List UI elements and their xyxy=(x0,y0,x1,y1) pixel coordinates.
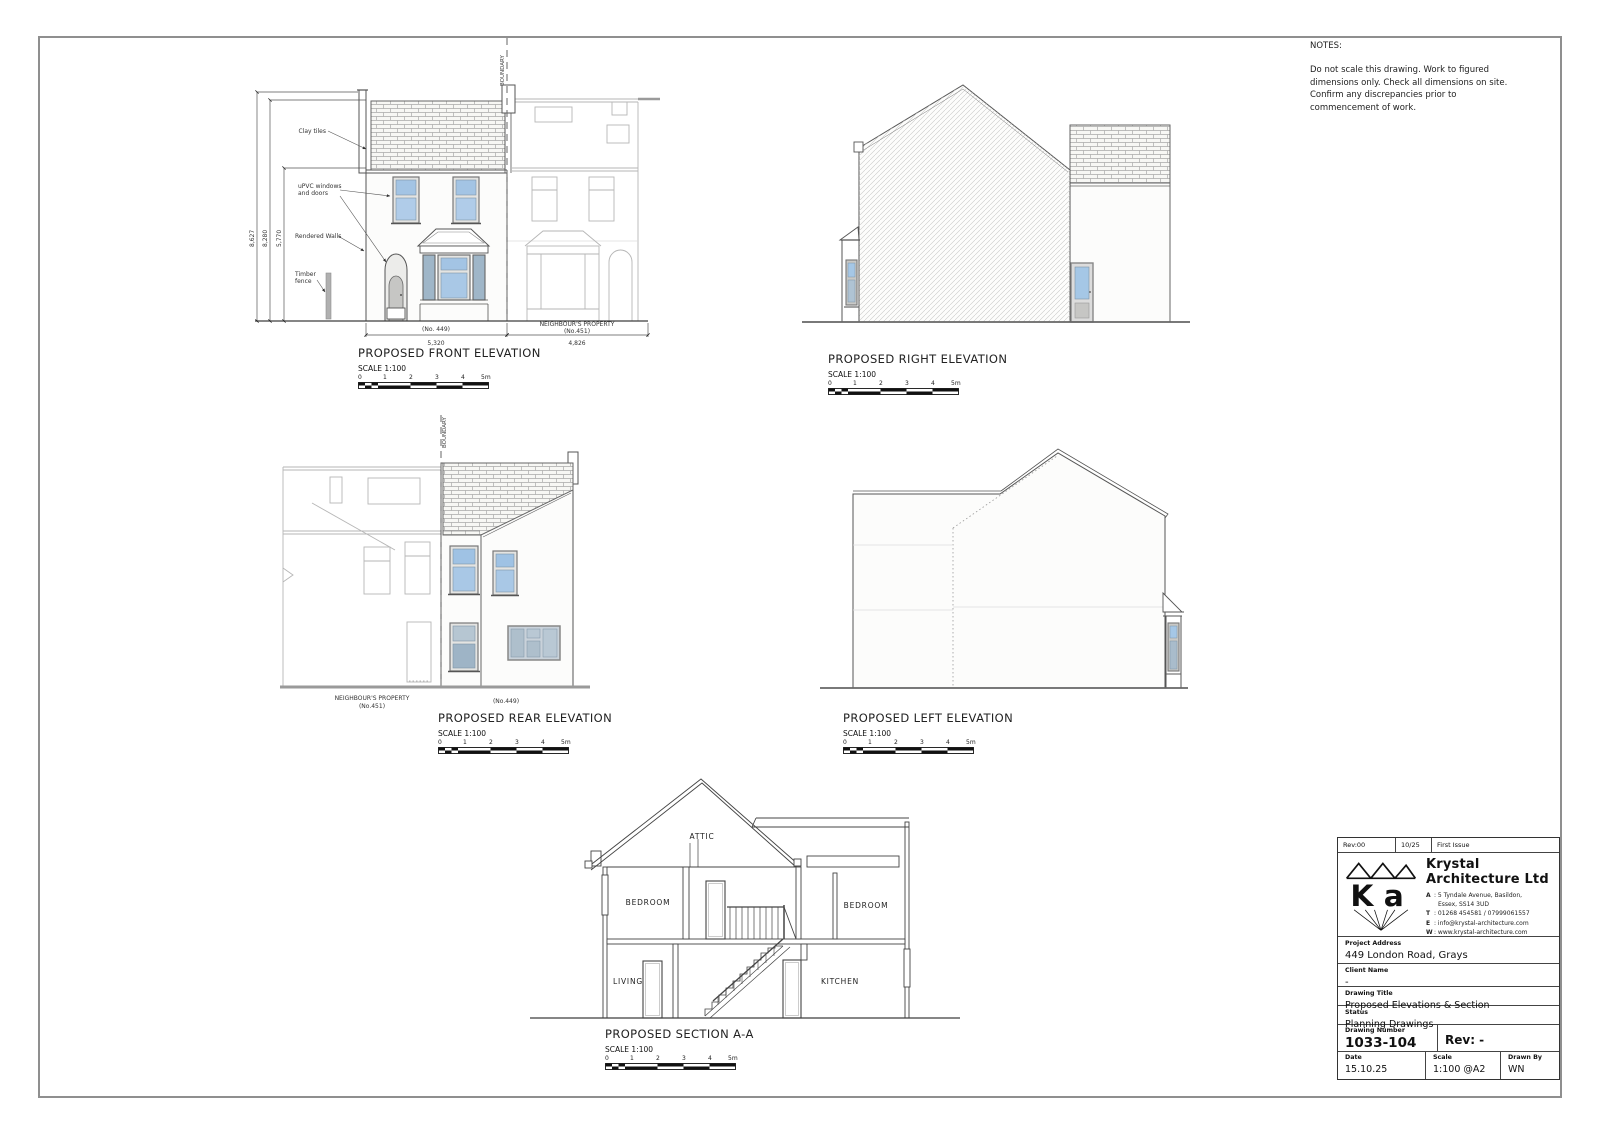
scalebar-tick: 3 xyxy=(905,380,909,387)
scalebar-tick: 3 xyxy=(682,1055,686,1062)
rear-scalebar-ticks: 012345m xyxy=(438,739,574,746)
revision-row: Rev:00 10/25 First Issue xyxy=(1338,838,1559,853)
front-timber-fence-post xyxy=(326,273,331,319)
rear-neighbour-label-1: NEIGHBOUR'S PROPERTY xyxy=(335,695,410,702)
scalebar-tick: 5m xyxy=(728,1055,738,1062)
rendered-walls-label: Rendered Walls xyxy=(295,233,341,240)
front-scalebar-ticks: 012345m xyxy=(358,374,494,381)
scalebar-tick: 0 xyxy=(843,739,847,746)
timber-fence-label-1: Timber xyxy=(294,271,316,278)
timber-fence-label-2: fence xyxy=(295,278,312,285)
left-elevation-drawing: PROPOSED LEFT ELEVATION SCALE 1:100 0123… xyxy=(820,430,1190,760)
clay-tiles-label: Clay tiles xyxy=(299,128,327,135)
scalebar-tick: 3 xyxy=(515,739,519,746)
right-door xyxy=(1071,263,1093,322)
scalebar-tick: 3 xyxy=(435,374,439,381)
client-name-field: Client Name - xyxy=(1338,964,1559,987)
rear-scalebar xyxy=(438,747,570,755)
left-flank-wall xyxy=(853,449,1168,688)
client-name-label: Client Name xyxy=(1345,967,1552,974)
drawing-sheet: NOTES: Do not scale this drawing. Work t… xyxy=(0,0,1600,1131)
timber-fence-leader xyxy=(317,280,325,292)
section-footer: PROPOSED SECTION A-A SCALE 1:100 012345m xyxy=(605,1027,754,1071)
left-elevation-title: PROPOSED LEFT ELEVATION xyxy=(843,711,1013,725)
front-scalebar xyxy=(358,382,490,390)
left-bay-window xyxy=(1163,593,1184,688)
section-drawing: ATTIC BEDROOM BEDROOM LIVING KITCHEN PRO… xyxy=(500,755,980,1075)
scalebar-tick: 0 xyxy=(438,739,442,746)
logo-letter-k: K xyxy=(1350,879,1374,914)
scalebar-tick: 1 xyxy=(463,739,467,746)
front-elevation-drawing: BOUNDARY 8,627 8,280 5,770 (No. xyxy=(240,80,660,400)
drawing-number-label: Drawing Number xyxy=(1345,1027,1430,1034)
drawing-number-row: Drawing Number 1033-104 Rev: - xyxy=(1338,1025,1559,1052)
right-scalebar xyxy=(828,388,960,396)
address-key: A xyxy=(1426,891,1434,900)
revision-cell: Rev: - xyxy=(1438,1025,1491,1051)
scalebar-tick: 2 xyxy=(489,739,493,746)
drawn-by-value: WN xyxy=(1508,1064,1552,1075)
rear-window-ff-right xyxy=(491,551,519,596)
scalebar-tick: 2 xyxy=(409,374,413,381)
scalebar-tick: 2 xyxy=(894,739,898,746)
scalebar-tick: 4 xyxy=(708,1055,712,1062)
email-key: E xyxy=(1426,919,1434,928)
date-scale-drawn-row: Date 15.10.25 Scale 1:100 @A2 Drawn By W… xyxy=(1338,1052,1559,1079)
right-elevation-scale: SCALE 1:100 xyxy=(828,370,1007,379)
scalebar-tick: 2 xyxy=(879,380,883,387)
front-dim-ridge-height: 8,280 xyxy=(262,230,269,247)
scalebar-tick: 2 xyxy=(656,1055,660,1062)
email-value: : info@krystal-architecture.com xyxy=(1434,920,1529,927)
rear-elevation-drawing: BOUNDARY NEIGHBOUR'S PROPERTY (No.451) (… xyxy=(280,410,620,760)
project-address-value: 449 London Road, Grays xyxy=(1345,950,1552,961)
logo-letter-a: a xyxy=(1384,879,1404,914)
scalebar-tick: 5m xyxy=(561,739,571,746)
front-neighbour-label-1: NEIGHBOUR'S PROPERTY xyxy=(540,321,615,328)
date-label: Date xyxy=(1345,1054,1418,1061)
right-gable-wall xyxy=(854,85,1070,322)
rear-proposed-house xyxy=(441,452,578,687)
scalebar-tick: 0 xyxy=(828,380,832,387)
right-scalebar-ticks: 012345m xyxy=(828,380,964,387)
scalebar-tick: 4 xyxy=(461,374,465,381)
rear-elevation-title: PROPOSED REAR ELEVATION xyxy=(438,711,612,725)
upvc-label-1: uPVC windows xyxy=(298,183,342,190)
scale-cell: Scale 1:100 @A2 xyxy=(1426,1052,1501,1079)
rear-house-number: (No.449) xyxy=(493,698,519,705)
address-line-2: Essex, SS14 3UD xyxy=(1438,901,1489,908)
section-scale: SCALE 1:100 xyxy=(605,1045,754,1054)
front-elevation-footer: PROPOSED FRONT ELEVATION SCALE 1:100 012… xyxy=(358,346,541,390)
front-house-number: (No. 449) xyxy=(422,326,450,333)
front-elevation-scale: SCALE 1:100 xyxy=(358,364,541,373)
scalebar-tick: 4 xyxy=(931,380,935,387)
right-proposed-house xyxy=(1070,125,1170,322)
scalebar-tick: 5m xyxy=(951,380,961,387)
scalebar-tick: 1 xyxy=(853,380,857,387)
section-scalebar-ticks: 012345m xyxy=(605,1055,741,1062)
scalebar-tick: 1 xyxy=(630,1055,634,1062)
section-room-kitchen: KITCHEN xyxy=(821,977,859,986)
scalebar-tick: 1 xyxy=(868,739,872,746)
section-room-bedroom-right: BEDROOM xyxy=(844,901,889,910)
front-clay-tile-roof xyxy=(371,101,505,170)
front-vertical-dimensions xyxy=(257,92,366,321)
front-neighbour-label-2: (No.451) xyxy=(564,328,590,335)
front-proposed-house xyxy=(326,85,515,321)
notes-block: NOTES: Do not scale this drawing. Work t… xyxy=(1310,40,1528,115)
scalebar-tick: 5m xyxy=(966,739,976,746)
drawing-title-label: Drawing Title xyxy=(1345,990,1552,997)
revision-value: Rev: - xyxy=(1445,1033,1484,1047)
drawn-by-label: Drawn By xyxy=(1508,1054,1552,1061)
revision-description: First Issue xyxy=(1432,838,1559,852)
front-boundary-label: BOUNDARY xyxy=(500,54,506,86)
phone-key: T xyxy=(1426,909,1434,918)
title-block: Rev:00 10/25 First Issue K a Krystal Arc… xyxy=(1337,837,1560,1080)
left-scalebar xyxy=(843,747,975,755)
left-elevation-scale: SCALE 1:100 xyxy=(843,729,1013,738)
scalebar-tick: 3 xyxy=(920,739,924,746)
drawing-title-field: Drawing Title Proposed Elevations & Sect… xyxy=(1338,987,1559,1006)
company-name-1: Krystal xyxy=(1426,858,1555,873)
right-elevation-footer: PROPOSED RIGHT ELEVATION SCALE 1:100 012… xyxy=(828,352,1007,396)
scalebar-tick: 0 xyxy=(605,1055,609,1062)
phone-value: : 01268 454581 / 07999061557 xyxy=(1434,910,1530,917)
project-address-field: Project Address 449 London Road, Grays xyxy=(1338,937,1559,964)
rear-window-gf-left xyxy=(448,623,480,672)
notes-title: NOTES: xyxy=(1310,40,1528,53)
scale-label: Scale xyxy=(1433,1054,1493,1061)
date-cell: Date 15.10.25 xyxy=(1338,1052,1426,1079)
scalebar-tick: 4 xyxy=(946,739,950,746)
front-window-ff-right xyxy=(451,177,481,224)
rear-elevation-footer: PROPOSED REAR ELEVATION SCALE 1:100 0123… xyxy=(438,711,612,755)
company-address: A: 5 Tyndale Avenue, Basildon, Essex, SS… xyxy=(1426,891,1555,937)
right-elevation-title: PROPOSED RIGHT ELEVATION xyxy=(828,352,1007,366)
front-window-ff-left xyxy=(391,177,421,224)
scalebar-tick: 5m xyxy=(481,374,491,381)
section-room-bedroom-left: BEDROOM xyxy=(626,898,671,907)
scalebar-tick: 0 xyxy=(358,374,362,381)
right-bay-window xyxy=(840,227,860,322)
rear-boundary-label: BOUNDARY xyxy=(442,416,448,448)
rear-neighbour-label-2: (No.451) xyxy=(359,703,385,710)
rear-window-gf-wide xyxy=(508,626,560,660)
drawing-number-value: 1033-104 xyxy=(1345,1035,1430,1051)
front-elevation-title: PROPOSED FRONT ELEVATION xyxy=(358,346,541,360)
notes-body: Do not scale this drawing. Work to figur… xyxy=(1310,64,1528,115)
front-dim-neighbour-width: 4,826 xyxy=(568,340,585,347)
rear-window-ff-left xyxy=(448,546,480,595)
section-room-living: LIVING xyxy=(613,977,643,986)
revision-number: Rev:00 xyxy=(1338,838,1396,852)
website-value: : www.krystal-architecture.com xyxy=(1434,929,1528,936)
section-scalebar xyxy=(605,1063,737,1071)
section-title: PROPOSED SECTION A-A xyxy=(605,1027,754,1041)
right-elevation-drawing: PROPOSED RIGHT ELEVATION SCALE 1:100 012… xyxy=(800,70,1200,400)
scalebar-tick: 4 xyxy=(541,739,545,746)
date-value: 15.10.25 xyxy=(1345,1064,1418,1075)
krystal-logo-icon: K a xyxy=(1341,856,1421,934)
scalebar-tick: 1 xyxy=(383,374,387,381)
company-row: K a Krystal Architecture Ltd A: 5 Tyndal… xyxy=(1338,853,1559,937)
rear-elevation-scale: SCALE 1:100 xyxy=(438,729,612,738)
project-address-label: Project Address xyxy=(1345,940,1552,947)
drawing-number-cell: Drawing Number 1033-104 xyxy=(1338,1025,1438,1051)
company-name-2: Architecture Ltd xyxy=(1426,873,1555,888)
left-elevation-footer: PROPOSED LEFT ELEVATION SCALE 1:100 0123… xyxy=(843,711,1013,755)
website-key: W xyxy=(1426,928,1434,937)
front-dim-eaves-height: 5,770 xyxy=(276,230,283,247)
upvc-label-2: and doors xyxy=(298,190,328,197)
company-logo: K a xyxy=(1338,853,1424,936)
front-dim-total-height: 8,627 xyxy=(249,230,256,247)
rear-neighbour-house xyxy=(283,467,441,687)
drawn-by-cell: Drawn By WN xyxy=(1501,1052,1559,1079)
scale-value: 1:100 @A2 xyxy=(1433,1064,1493,1075)
revision-date: 10/25 xyxy=(1396,838,1432,852)
address-line-1: : 5 Tyndale Avenue, Basildon, xyxy=(1434,892,1522,899)
rendered-walls-leader xyxy=(338,236,364,251)
company-info: Krystal Architecture Ltd A: 5 Tyndale Av… xyxy=(1424,853,1559,936)
section-room-attic: ATTIC xyxy=(689,832,714,841)
front-door xyxy=(385,254,407,321)
left-scalebar-ticks: 012345m xyxy=(843,739,979,746)
